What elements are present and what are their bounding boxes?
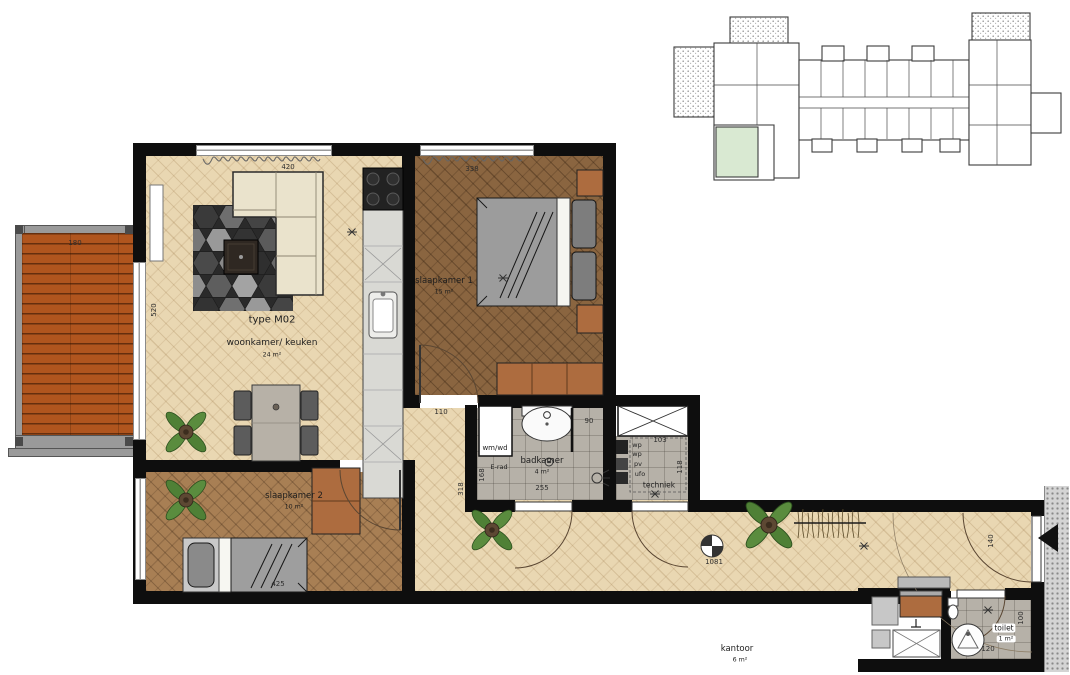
balcony-sliding-door (133, 262, 146, 440)
room-label-bedroom1: slaapkamer 1 (415, 276, 473, 286)
room-label-toilet: toilet (992, 624, 1015, 633)
unit-type-label: type M02 (249, 315, 296, 326)
electric-radiator-label: E-rad (490, 463, 507, 471)
heat-pump-label: wp (632, 450, 641, 458)
dimension-label: 103 (653, 436, 666, 444)
wall (465, 500, 515, 512)
wall (402, 472, 415, 591)
outside-entry-area (1044, 486, 1069, 672)
dimension-label: 110 (434, 408, 447, 416)
room-label-technical: techniek (643, 481, 675, 490)
wall (688, 395, 700, 512)
dimension-label: 338 (465, 165, 478, 173)
dimension-label: 1081 (705, 558, 723, 566)
room-area-toilet: 1 m² (997, 636, 1016, 643)
room-area-office: 6 m² (733, 657, 748, 664)
room-area-bedroom2: 10 m² (285, 504, 304, 511)
dimension-label: 318 (457, 482, 465, 495)
room-label-bedroom2: slaapkamer 2 (265, 491, 323, 501)
wall (941, 591, 951, 659)
pv-inverter-label: pv (634, 460, 642, 468)
dimension-label: 120 (981, 645, 994, 653)
balcony-rail-bottom (15, 435, 135, 449)
wall (603, 143, 616, 405)
room-area-bedroom1: 15 m² (435, 289, 454, 296)
wall (858, 659, 1044, 672)
dimension-label: 420 (281, 163, 294, 171)
vent-unit-label: ufo (635, 470, 645, 478)
dimension-label: 118 (676, 460, 684, 473)
dimension-label: 255 (535, 484, 548, 492)
room-area-bathroom: 4 m² (535, 469, 550, 476)
window-bedroom1 (420, 145, 534, 156)
heat-pump-label: wp (632, 441, 641, 449)
dimension-label: 100 (1017, 611, 1025, 624)
wall (146, 460, 340, 472)
balcony-rail-bottom2 (8, 448, 143, 457)
window-living-room (196, 145, 332, 156)
floor-living-room (146, 156, 402, 460)
wall (133, 591, 870, 604)
office-cabinet (872, 630, 890, 648)
dimension-label: 168 (478, 468, 486, 481)
dimension-label: 140 (987, 534, 995, 547)
room-label-office: kantoor (721, 644, 754, 654)
wall (478, 395, 603, 408)
wall (1031, 500, 1044, 516)
balcony-deck (22, 233, 133, 435)
washer-dryer-label: wm/wd (482, 444, 507, 452)
wall (688, 500, 1044, 512)
dimension-label: 180 (68, 239, 81, 247)
dimension-label: 90 (585, 417, 594, 425)
floor-plan-canvas: type M02 woonkamer/ keuken 24 m² slaapka… (0, 0, 1070, 675)
wall (572, 500, 632, 512)
wall (1005, 588, 1031, 600)
room-label-bathroom: badkamer (521, 456, 564, 466)
wall (400, 460, 415, 472)
wall (858, 588, 950, 604)
ventilation-unit (618, 406, 688, 436)
wall (603, 395, 700, 406)
overview-highlighted-unit (716, 127, 758, 177)
wall (402, 395, 420, 408)
overview-plan (672, 5, 1064, 187)
wall (402, 143, 415, 405)
floor-corridor (415, 500, 1031, 591)
dimension-label: 425 (271, 580, 284, 588)
window-bedroom2 (135, 478, 146, 580)
wall (603, 405, 616, 500)
dimension-label: 520 (150, 303, 158, 316)
room-area-living: 24 m² (263, 352, 282, 359)
office-table (893, 630, 940, 657)
wall (465, 405, 477, 500)
floor-bedroom2 (146, 472, 402, 591)
room-label-living: woonkamer/ keuken (227, 338, 318, 348)
